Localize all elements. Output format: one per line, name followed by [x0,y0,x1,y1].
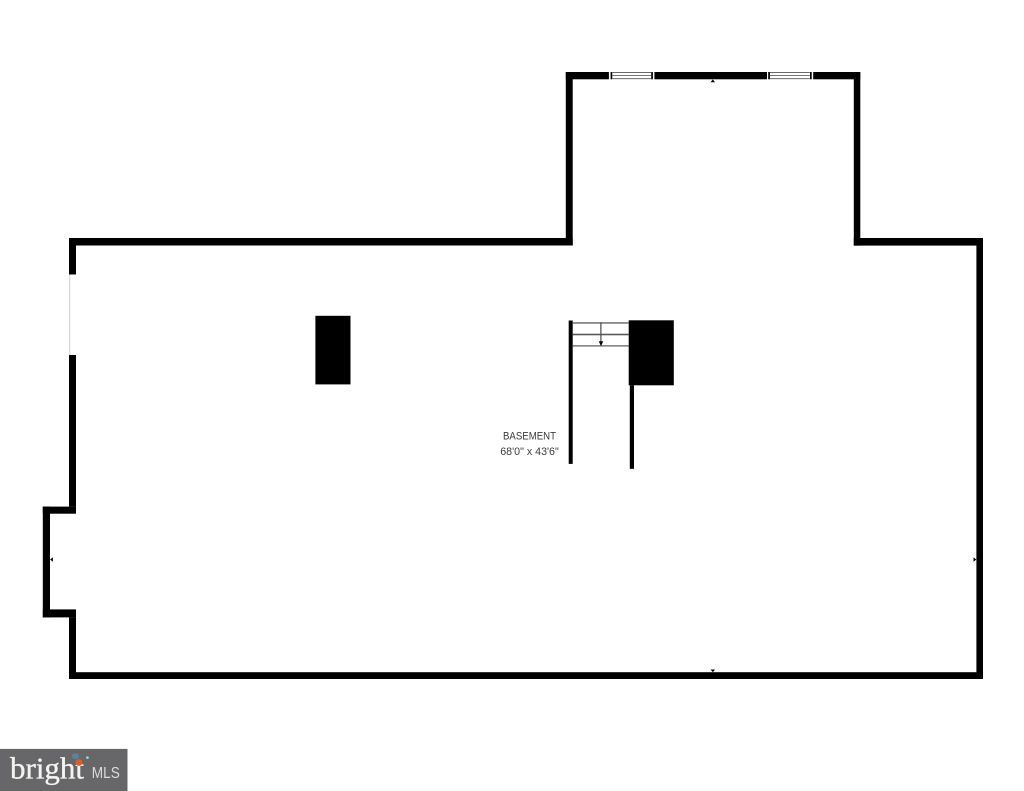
svg-text:BASEMENT: BASEMENT [503,431,556,443]
svg-text:68'0" x 43'6": 68'0" x 43'6" [500,446,559,458]
svg-text:MLS: MLS [92,765,120,782]
